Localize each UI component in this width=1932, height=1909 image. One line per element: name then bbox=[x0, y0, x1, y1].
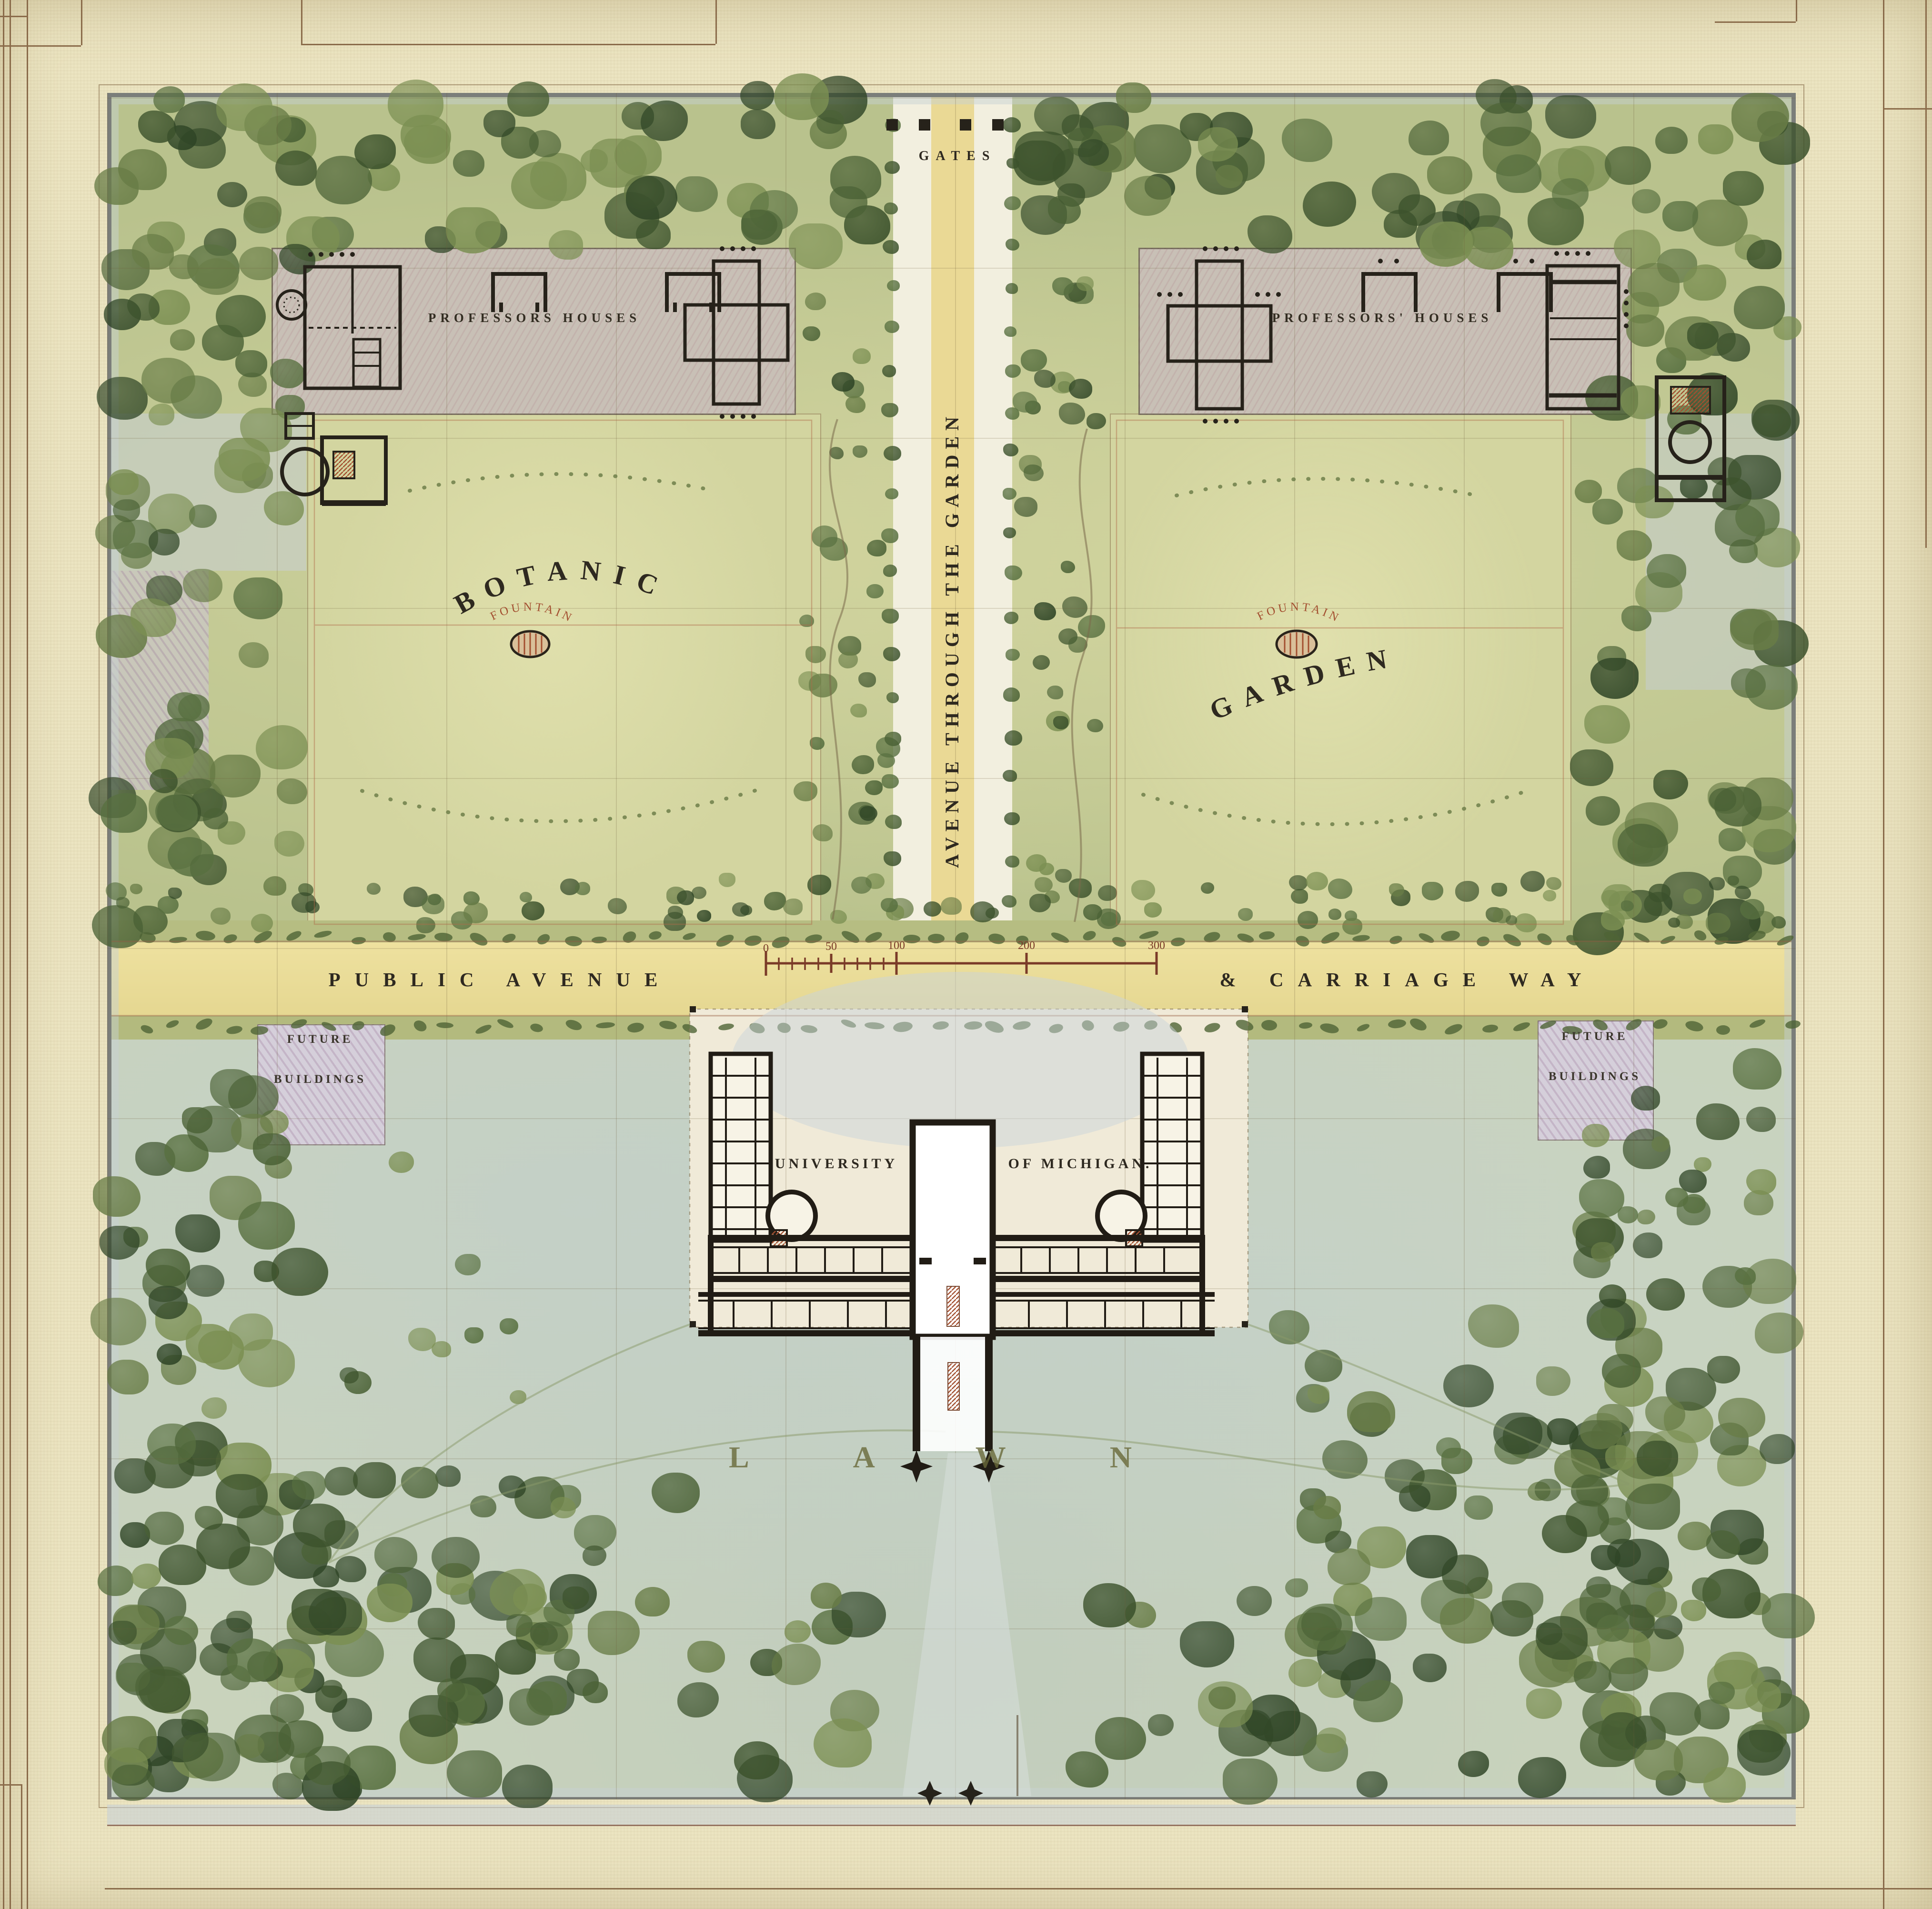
corner-house-left bbox=[282, 414, 386, 503]
fountain-label-left: FOUNTAIN bbox=[488, 600, 576, 625]
professors-houses-label-left: PROFESSORS HOUSES bbox=[428, 311, 641, 325]
university-label: UNIVERSITY bbox=[775, 1156, 898, 1172]
svg-text:50: 50 bbox=[825, 940, 837, 953]
public-avenue-label: PUBLIC AVENUE bbox=[329, 968, 672, 991]
watercolor-plan-sheet: BOTANIC FOUNTAIN GARDEN FOUNTAIN AVENUE … bbox=[0, 0, 1932, 1909]
gates-label: GATES bbox=[919, 149, 996, 164]
university-building bbox=[690, 972, 1248, 1483]
svg-text:100: 100 bbox=[888, 939, 905, 952]
of-michigan-label: OF MICHIGAN. bbox=[1008, 1156, 1153, 1172]
scale-bar: 0 50 100 200 300 bbox=[763, 939, 1165, 976]
fountain-left bbox=[511, 631, 549, 657]
lawn-center-vista bbox=[903, 1453, 1031, 1796]
carriage-way-label: & CARRIAGE WAY bbox=[1219, 968, 1595, 991]
professors-houses-label-right: PROFESSORS' HOUSES bbox=[1272, 311, 1493, 325]
future-buildings-label-right-line2: BUILDINGS bbox=[1549, 1070, 1641, 1083]
ink-overlay: BOTANIC FOUNTAIN GARDEN FOUNTAIN AVENUE … bbox=[0, 0, 1932, 1909]
future-buildings-label-right-line1: FUTURE bbox=[1562, 1030, 1628, 1043]
future-buildings-label-left-line2: BUILDINGS bbox=[274, 1073, 366, 1086]
lawn-label: LAWN bbox=[729, 1440, 1236, 1475]
fountain-label-right: FOUNTAIN bbox=[1255, 600, 1343, 625]
svg-text:200: 200 bbox=[1018, 939, 1035, 952]
gate-posts-north bbox=[886, 119, 1004, 131]
professors-house-plans-right bbox=[1157, 246, 1629, 424]
avenue-through-garden-label: AVENUE THROUGH THE GARDEN bbox=[941, 411, 963, 868]
corner-house-right bbox=[1657, 377, 1724, 500]
svg-text:300: 300 bbox=[1148, 939, 1165, 952]
svg-text:0: 0 bbox=[763, 942, 769, 955]
fountain-right bbox=[1277, 631, 1317, 657]
professors-house-plans-left bbox=[277, 246, 788, 419]
future-buildings-label-left-line1: FUTURE bbox=[287, 1033, 353, 1046]
